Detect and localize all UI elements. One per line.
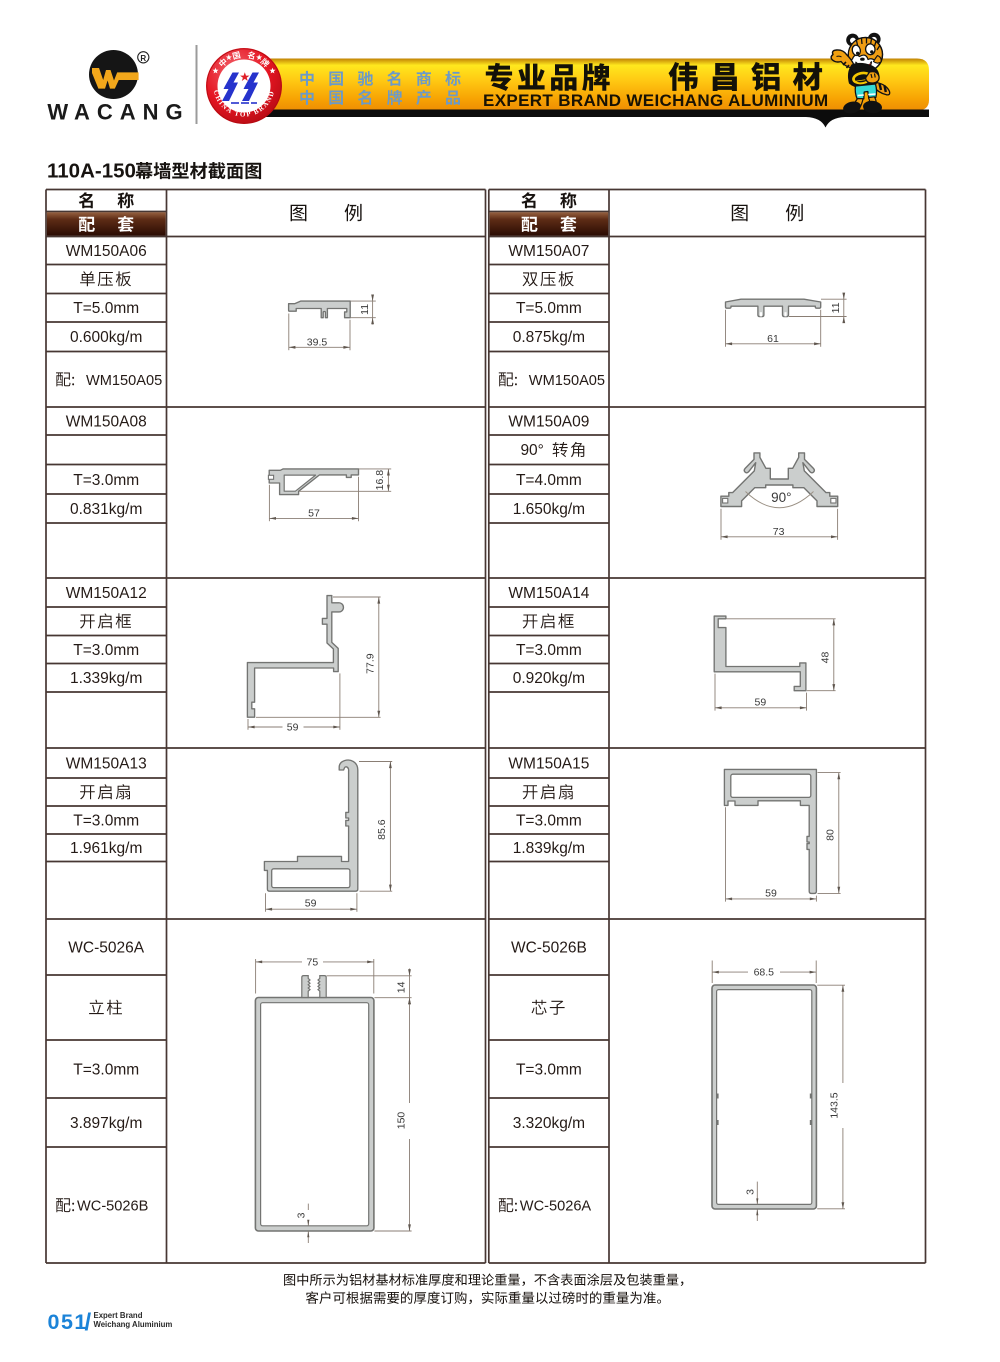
svg-text:1.339kg/m: 1.339kg/m xyxy=(70,670,142,687)
svg-text:77.9: 77.9 xyxy=(365,653,377,674)
svg-text:WM150A09: WM150A09 xyxy=(508,414,589,431)
svg-text:WM150A07: WM150A07 xyxy=(508,243,589,260)
svg-text:68.5: 68.5 xyxy=(754,967,775,979)
svg-text:14: 14 xyxy=(395,981,407,993)
svg-text:WM150A05: WM150A05 xyxy=(86,373,162,389)
svg-text:75: 75 xyxy=(307,957,319,969)
svg-text:61: 61 xyxy=(767,333,779,345)
svg-text:WC-5026A: WC-5026A xyxy=(68,940,144,957)
svg-text:WACANG: WACANG xyxy=(47,100,189,125)
svg-text:T=3.0mm: T=3.0mm xyxy=(516,813,582,830)
svg-text:R: R xyxy=(140,54,146,63)
svg-text:3.320kg/m: 3.320kg/m xyxy=(513,1115,585,1132)
svg-text:T=3.0mm: T=3.0mm xyxy=(73,813,139,830)
svg-text:39.5: 39.5 xyxy=(307,337,328,349)
svg-text:051: 051 xyxy=(48,1310,88,1334)
svg-text:1.839kg/m: 1.839kg/m xyxy=(513,840,585,857)
svg-text:WC-5026A: WC-5026A xyxy=(520,1199,592,1215)
svg-text:73: 73 xyxy=(773,526,785,538)
svg-text:WM150A06: WM150A06 xyxy=(66,243,147,260)
svg-text:143.5: 143.5 xyxy=(829,1092,841,1118)
svg-text:T=5.0mm: T=5.0mm xyxy=(73,300,139,317)
svg-text:T=3.0mm: T=3.0mm xyxy=(73,642,139,659)
svg-text:48: 48 xyxy=(820,652,832,664)
svg-text:90°: 90° xyxy=(771,490,791,505)
svg-text:WM150A14: WM150A14 xyxy=(508,585,589,602)
svg-text:3.897kg/m: 3.897kg/m xyxy=(70,1115,142,1132)
svg-text:WM150A08: WM150A08 xyxy=(66,414,147,431)
svg-text:0.831kg/m: 0.831kg/m xyxy=(70,501,142,518)
svg-text:59: 59 xyxy=(755,697,767,709)
svg-text:T=4.0mm: T=4.0mm xyxy=(516,472,582,489)
svg-text:WC-5026B: WC-5026B xyxy=(511,940,587,957)
svg-text:T=3.0mm: T=3.0mm xyxy=(73,472,139,489)
svg-text:T=3.0mm: T=3.0mm xyxy=(516,1062,582,1079)
svg-text:WM150A15: WM150A15 xyxy=(508,756,589,773)
svg-text:1.650kg/m: 1.650kg/m xyxy=(513,501,585,518)
svg-text:59: 59 xyxy=(765,888,777,900)
svg-text:Expert Brand: Expert Brand xyxy=(94,1311,143,1320)
svg-text:0.600kg/m: 0.600kg/m xyxy=(70,329,142,346)
svg-text:85.6: 85.6 xyxy=(376,819,388,840)
svg-text:WM150A12: WM150A12 xyxy=(66,585,147,602)
svg-text:59: 59 xyxy=(305,898,317,910)
svg-text:WC-5026B: WC-5026B xyxy=(77,1199,148,1215)
svg-text:59: 59 xyxy=(287,721,299,733)
svg-text:57: 57 xyxy=(308,508,320,520)
svg-text:16.8: 16.8 xyxy=(374,470,386,491)
svg-text:/: / xyxy=(85,1309,92,1336)
svg-text:11: 11 xyxy=(830,302,842,313)
svg-text:90°: 90° xyxy=(520,442,543,459)
svg-text:T=3.0mm: T=3.0mm xyxy=(516,642,582,659)
svg-text:T=3.0mm: T=3.0mm xyxy=(73,1062,139,1079)
svg-text:80: 80 xyxy=(825,829,837,841)
svg-text:3: 3 xyxy=(296,1212,308,1218)
svg-text:EXPERT BRAND WEICHANG ALUMINIU: EXPERT BRAND WEICHANG ALUMINIUM xyxy=(483,91,829,110)
svg-text:150: 150 xyxy=(395,1112,407,1130)
svg-text:110A-150: 110A-150 xyxy=(47,160,136,183)
svg-text:WM150A13: WM150A13 xyxy=(66,756,147,773)
svg-text:11: 11 xyxy=(359,304,371,315)
svg-text:1.961kg/m: 1.961kg/m xyxy=(70,840,142,857)
svg-text:0.875kg/m: 0.875kg/m xyxy=(513,329,585,346)
svg-text:0.920kg/m: 0.920kg/m xyxy=(513,670,585,687)
svg-text:Weichang Aluminium: Weichang Aluminium xyxy=(94,1320,173,1329)
svg-text:3: 3 xyxy=(745,1189,757,1195)
svg-text:T=5.0mm: T=5.0mm xyxy=(516,300,582,317)
svg-text:WM150A05: WM150A05 xyxy=(529,373,605,389)
